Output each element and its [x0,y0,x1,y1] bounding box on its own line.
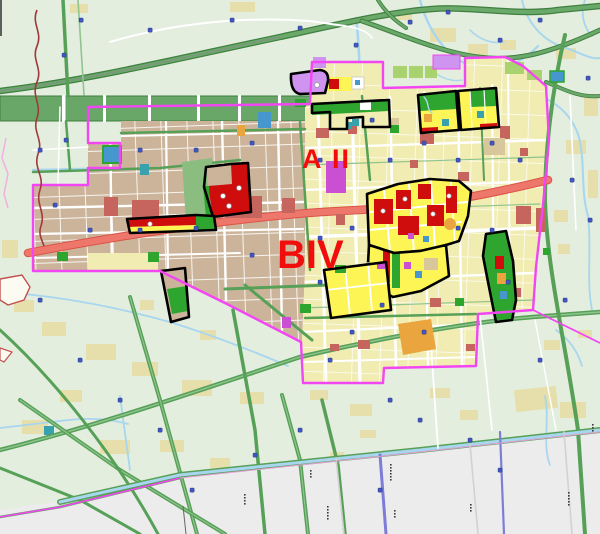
green-belt-corridor [0,95,345,122]
label-district-a: A II [302,144,351,174]
district-green-yellow-west [418,91,459,133]
old-town-yellow-block [88,253,158,270]
planning-map-viewport[interactable]: A II BIV [0,0,600,534]
district-central-commercial [367,179,471,253]
district-red-tan [203,163,251,217]
district-green-yellow-east [458,88,499,130]
label-district-b: BIV [277,233,344,277]
land-use-map-canvas: A II BIV [0,0,600,534]
